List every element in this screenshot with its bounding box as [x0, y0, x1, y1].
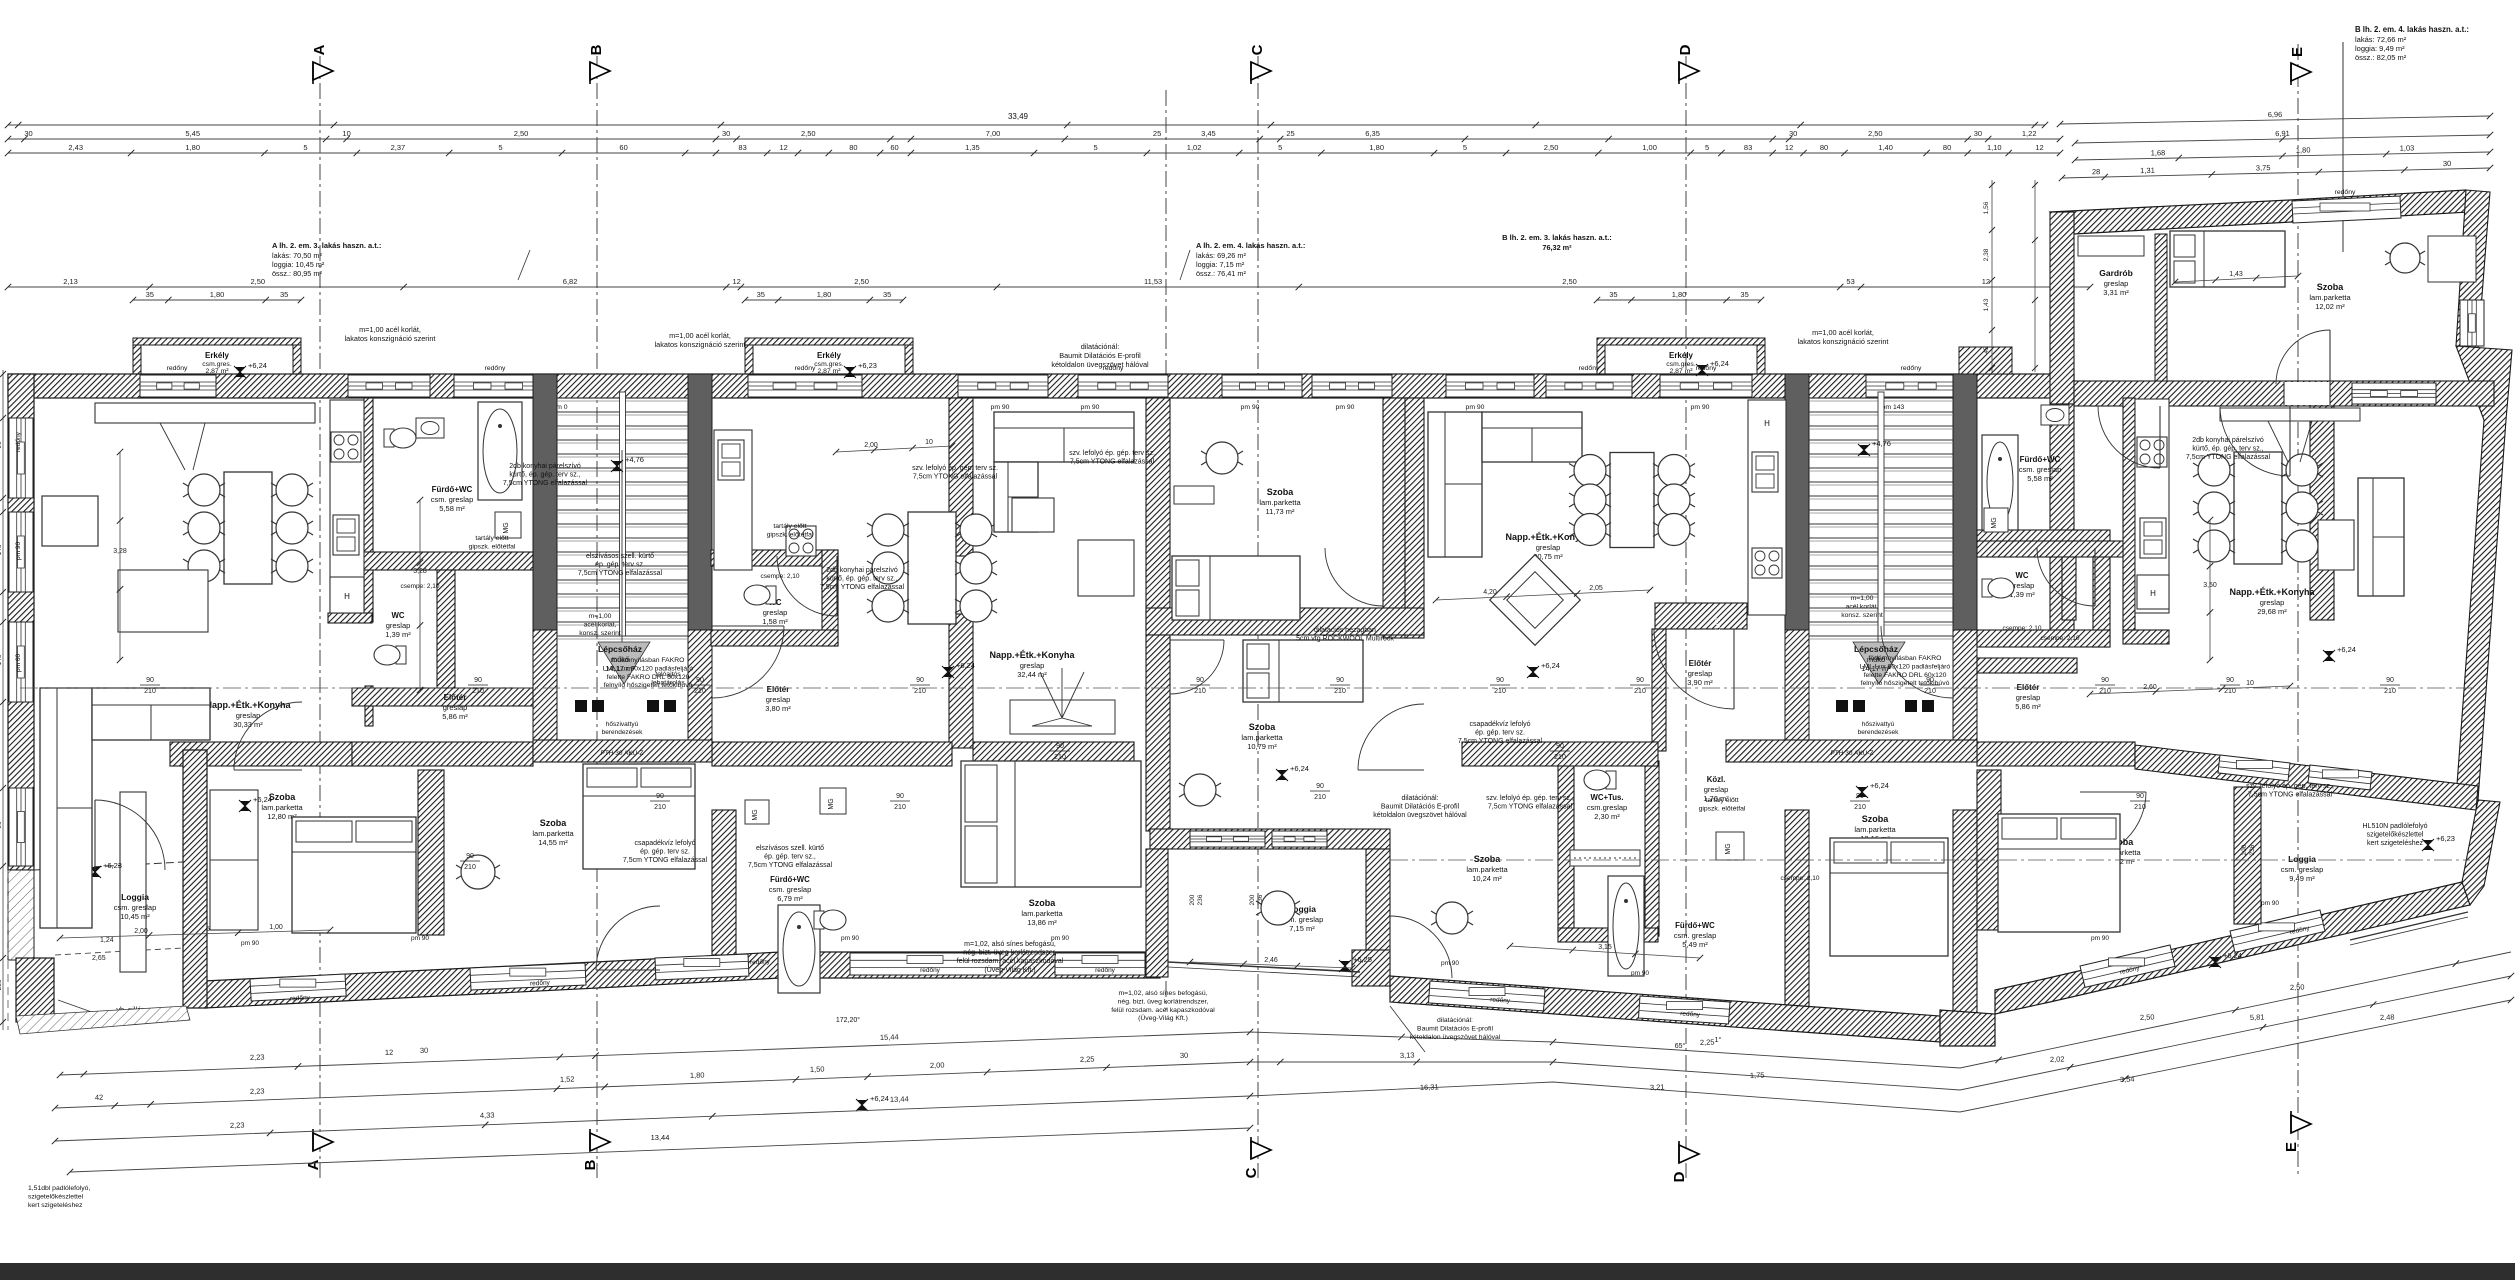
- svg-text:210: 210: [1554, 754, 1566, 761]
- svg-text:MG: MG: [1725, 843, 1732, 854]
- svg-text:90: 90: [916, 677, 924, 684]
- svg-text:+6,24: +6,24: [2223, 951, 2242, 960]
- svg-text:redőny: redőny: [1680, 1010, 1701, 1018]
- svg-text:3,15: 3,15: [1598, 944, 1612, 951]
- svg-text:lam.parketta: lam.parketta: [1466, 865, 1508, 874]
- svg-text:greslap: greslap: [766, 695, 791, 704]
- svg-text:Lépcsőház: Lépcsőház: [598, 644, 642, 654]
- svg-text:dilatációs hézagban: dilatációs hézagban: [1314, 627, 1376, 634]
- svg-text:szv. lefolyó ép. gép. terv sz.: szv. lefolyó ép. gép. terv sz.,: [1486, 795, 1574, 802]
- svg-text:C: C: [1243, 1167, 1260, 1178]
- svg-text:33,49: 33,49: [1008, 112, 1029, 121]
- svg-text:5,86 m²: 5,86 m²: [2015, 702, 2041, 711]
- svg-text:25: 25: [1286, 129, 1294, 138]
- svg-text:m=1,00 acél korlát,: m=1,00 acél korlát,: [1812, 328, 1874, 337]
- svg-text:3,75: 3,75: [2256, 163, 2271, 172]
- svg-text:pm 90: pm 90: [1241, 404, 1260, 411]
- svg-text:m=1,00 acél korlát,: m=1,00 acél korlát,: [359, 325, 421, 334]
- svg-text:12: 12: [1982, 277, 1990, 286]
- svg-text:B lh. 2. em. 3. lakás haszn. a: B lh. 2. em. 3. lakás haszn. a.t.:: [1502, 233, 1612, 242]
- svg-text:210: 210: [2134, 804, 2146, 811]
- svg-text:csm. greslap: csm. greslap: [2019, 465, 2062, 474]
- svg-text:Szoba: Szoba: [1267, 487, 1294, 497]
- svg-text:5: 5: [303, 143, 307, 152]
- svg-text:szv. lefolyó ép. gép. terv sz.: szv. lefolyó ép. gép. terv sz.: [1069, 450, 1155, 457]
- svg-text:Közl.: Közl.: [1707, 775, 1726, 784]
- svg-text:210: 210: [694, 688, 706, 695]
- svg-text:felnyíló hőszigetelt tetőkibúv: felnyíló hőszigetelt tetőkibúvó: [1861, 680, 1950, 687]
- svg-text:redőny: redőny: [2335, 189, 2356, 196]
- svg-text:redőny: redőny: [15, 431, 22, 452]
- svg-text:13,86 m²: 13,86 m²: [1027, 918, 1057, 927]
- svg-text:210: 210: [472, 688, 484, 695]
- svg-text:90: 90: [1556, 743, 1564, 750]
- svg-text:Loggia: Loggia: [121, 892, 149, 902]
- svg-text:redőny: redőny: [795, 365, 816, 372]
- svg-text:6,82: 6,82: [563, 277, 578, 286]
- svg-text:lakatos konszignáció szerint: lakatos konszignáció szerint: [345, 334, 436, 343]
- svg-text:210: 210: [1054, 754, 1066, 761]
- svg-text:35: 35: [146, 290, 154, 299]
- svg-text:dilatációnál:: dilatációnál:: [1437, 1017, 1473, 1024]
- svg-text:csm.gres.: csm.gres.: [814, 361, 844, 368]
- svg-text:2,13: 2,13: [63, 277, 78, 286]
- svg-text:90: 90: [474, 677, 482, 684]
- svg-text:146: 146: [0, 654, 3, 665]
- svg-text:lakás: 72,66 m²: lakás: 72,66 m²: [2355, 35, 2407, 44]
- svg-text:15,44: 15,44: [880, 1032, 899, 1042]
- svg-text:B: B: [582, 1159, 599, 1170]
- svg-text:30: 30: [1789, 129, 1797, 138]
- svg-text:2db konyhai párelszívó: 2db konyhai párelszívó: [2192, 437, 2264, 444]
- svg-text:kétoldalon üvegszövet hálóval: kétoldalon üvegszövet hálóval: [1410, 1034, 1501, 1041]
- svg-text:2,23: 2,23: [250, 1052, 265, 1062]
- svg-text:1,52: 1,52: [560, 1074, 575, 1084]
- svg-text:Szoba: Szoba: [540, 818, 567, 828]
- svg-text:5,58 m²: 5,58 m²: [2027, 474, 2053, 483]
- svg-text:Előtér: Előtér: [1689, 659, 1712, 668]
- svg-text:1,02: 1,02: [1187, 143, 1202, 152]
- svg-text:4,20: 4,20: [1483, 589, 1497, 596]
- svg-text:Baumit Dilatációs E-profil: Baumit Dilatációs E-profil: [1059, 351, 1141, 360]
- svg-text:7,5cm YTONG elfalazással: 7,5cm YTONG elfalazással: [820, 584, 905, 591]
- svg-text:90: 90: [656, 793, 664, 800]
- svg-text:csm. greslap: csm. greslap: [1674, 931, 1717, 940]
- svg-text:greslap: greslap: [1536, 543, 1561, 552]
- svg-text:1,03: 1,03: [2400, 143, 2415, 152]
- svg-text:1,40: 1,40: [1878, 143, 1893, 152]
- svg-text:ép. gép. terv sz.: ép. gép. terv sz.: [640, 849, 690, 856]
- svg-text:ép. gép. terv sz.: ép. gép. terv sz.: [595, 562, 645, 569]
- svg-text:210: 210: [2384, 688, 2396, 695]
- svg-text:lakatos konszignáció szerint: lakatos konszignáció szerint: [655, 340, 746, 349]
- svg-text:2,25: 2,25: [1080, 1054, 1095, 1064]
- svg-text:szv. lefolyó ép. gép. terv sz.: szv. lefolyó ép. gép. terv sz.: [912, 465, 998, 472]
- svg-text:lam.parketta: lam.parketta: [1021, 909, 1063, 918]
- svg-text:+6,24: +6,24: [956, 661, 975, 670]
- svg-text:5: 5: [1705, 143, 1709, 152]
- svg-text:redőny: redőny: [530, 979, 551, 987]
- svg-text:A: A: [305, 1159, 322, 1170]
- svg-text:PTH 30 AKU-Z: PTH 30 AKU-Z: [1831, 750, 1874, 757]
- svg-text:csm. greslap: csm. greslap: [2281, 865, 2324, 874]
- svg-text:14,55 m²: 14,55 m²: [538, 838, 568, 847]
- svg-text:2,37: 2,37: [391, 143, 406, 152]
- svg-text:2,60: 2,60: [2143, 684, 2157, 691]
- svg-text:2,50: 2,50: [801, 129, 816, 138]
- svg-text:90: 90: [2386, 677, 2394, 684]
- svg-text:berendezések: berendezések: [602, 729, 644, 736]
- svg-text:1,58 m²: 1,58 m²: [762, 617, 788, 626]
- svg-text:elszívásos szell. kürtő: elszívásos szell. kürtő: [586, 553, 654, 560]
- svg-text:Napp.+Étk.+Konyha: Napp.+Étk.+Konyha: [989, 650, 1075, 660]
- svg-text:3,31 m²: 3,31 m²: [2103, 288, 2129, 297]
- svg-text:1,80: 1,80: [210, 290, 225, 299]
- svg-text:PTH 30 AKU-Z: PTH 30 AKU-Z: [601, 750, 644, 757]
- svg-text:210: 210: [1634, 688, 1646, 695]
- svg-text:7,5cm YTONG elfalazással: 7,5cm YTONG elfalazással: [1458, 738, 1543, 745]
- svg-text:PTH 30 AKU-Z: PTH 30 AKU-Z: [463, 616, 470, 663]
- svg-text:tolóajtós: tolóajtós: [655, 671, 681, 678]
- svg-text:90: 90: [2226, 677, 2234, 684]
- svg-text:greslap: greslap: [2016, 693, 2041, 702]
- svg-text:felette FAKRO DRL 60x120: felette FAKRO DRL 60x120: [1864, 672, 1947, 679]
- svg-text:1,56: 1,56: [1983, 201, 1990, 214]
- svg-text:loggia: 10,45 m²: loggia: 10,45 m²: [272, 260, 325, 269]
- svg-text:6,35: 6,35: [1365, 129, 1380, 138]
- svg-text:6,79 m²: 6,79 m²: [777, 894, 803, 903]
- svg-text:1,80: 1,80: [185, 143, 200, 152]
- svg-text:2,48: 2,48: [2380, 1012, 2395, 1022]
- svg-text:12: 12: [385, 1048, 394, 1057]
- svg-text:pm 90: pm 90: [241, 940, 259, 947]
- svg-text:gipszk. előtétfal: gipszk. előtétfal: [469, 543, 516, 550]
- svg-text:200: 200: [2241, 844, 2248, 855]
- svg-text:H: H: [1764, 419, 1770, 428]
- svg-text:90: 90: [0, 441, 3, 449]
- svg-text:HL510N padlólefolyó: HL510N padlólefolyó: [2363, 823, 2428, 830]
- svg-text:pm 90: pm 90: [2091, 935, 2109, 942]
- svg-text:10,45 m²: 10,45 m²: [120, 912, 150, 921]
- svg-text:m=1,02, alsó sínes befogású,: m=1,02, alsó sínes befogású,: [964, 941, 1056, 948]
- svg-text:pm 90: pm 90: [1336, 404, 1355, 411]
- svg-text:172,20°: 172,20°: [836, 1016, 860, 1024]
- svg-text:szigetelőkészlettel: szigetelőkészlettel: [28, 1193, 84, 1200]
- svg-text:35: 35: [1740, 290, 1748, 299]
- svg-text:m=1,00: m=1,00: [1851, 595, 1874, 602]
- svg-text:90: 90: [1336, 677, 1344, 684]
- svg-text:Fürdő+WC: Fürdő+WC: [770, 875, 810, 884]
- svg-text:felül rozsdam. acél kapaszkodó: felül rozsdam. acél kapaszkodóval: [957, 958, 1064, 965]
- svg-text:45: 45: [1983, 346, 1990, 354]
- svg-text:össz.: 82,05 m²: össz.: 82,05 m²: [2355, 53, 2407, 62]
- svg-text:kétoldalon üvegszövet hálóval: kétoldalon üvegszövet hálóval: [1373, 812, 1467, 819]
- svg-text:A lh. 2. em. 4. lakás haszn. a: A lh. 2. em. 4. lakás haszn. a.t.:: [1196, 241, 1305, 250]
- svg-text:2,50: 2,50: [2290, 982, 2305, 992]
- svg-text:1,51dbl padlólefolyó,: 1,51dbl padlólefolyó,: [28, 1185, 90, 1192]
- svg-text:pm 60: pm 60: [15, 654, 22, 672]
- svg-text:csapadékvíz lefolyó: csapadékvíz lefolyó: [634, 840, 695, 847]
- svg-text:lehatárolás: lehatárolás: [651, 679, 685, 686]
- svg-text:+6,23: +6,23: [2436, 834, 2455, 843]
- svg-text:210: 210: [654, 804, 666, 811]
- svg-text:D: D: [1677, 44, 1694, 55]
- svg-text:90: 90: [1496, 677, 1504, 684]
- svg-text:80: 80: [1943, 143, 1951, 152]
- svg-text:3,21: 3,21: [1650, 1082, 1665, 1092]
- svg-text:hőszivattyú: hőszivattyú: [1862, 721, 1895, 728]
- svg-text:2,02: 2,02: [2050, 1054, 2065, 1064]
- svg-text:nég. bizt. üveg korlátrendszer: nég. bizt. üveg korlátrendszer,: [1118, 998, 1209, 1005]
- svg-text:konsz. szerint: konsz. szerint: [579, 630, 621, 637]
- svg-text:11,73 m²: 11,73 m²: [1265, 507, 1295, 516]
- svg-text:Loggia: Loggia: [2288, 854, 2316, 864]
- svg-text:greslap: greslap: [1020, 661, 1045, 670]
- svg-text:kert szigeteléshez: kert szigeteléshez: [2367, 840, 2424, 847]
- svg-text:redőny: redőny: [1901, 365, 1922, 372]
- svg-text:210: 210: [1924, 688, 1936, 695]
- svg-text:1,80: 1,80: [1369, 143, 1384, 152]
- svg-text:2,00: 2,00: [864, 442, 878, 449]
- svg-text:pm 90: pm 90: [1441, 960, 1459, 967]
- svg-text:236: 236: [2249, 844, 2256, 855]
- svg-text:210: 210: [1314, 794, 1326, 801]
- svg-text:35: 35: [280, 290, 288, 299]
- svg-text:+4,76: +4,76: [625, 455, 644, 464]
- svg-text:Szoba: Szoba: [269, 792, 296, 802]
- svg-text:30: 30: [1180, 1051, 1189, 1060]
- svg-text:3,54: 3,54: [2120, 1074, 2135, 1084]
- svg-text:redőny: redőny: [920, 967, 941, 974]
- svg-text:2db konyhai párelszívó: 2db konyhai párelszívó: [826, 567, 898, 574]
- svg-text:greslap: greslap: [443, 703, 468, 712]
- svg-text:(Üveg-Világ Kft.): (Üveg-Világ Kft.): [984, 966, 1035, 974]
- svg-text:5: 5: [1278, 143, 1282, 152]
- svg-text:5: 5: [1094, 143, 1098, 152]
- svg-text:7,5cm YTONG elfalazással: 7,5cm YTONG elfalazással: [623, 857, 708, 864]
- svg-text:MG: MG: [828, 798, 835, 809]
- svg-text:90: 90: [0, 821, 3, 829]
- svg-text:redőny: redőny: [485, 365, 506, 372]
- svg-text:redőny: redőny: [1490, 996, 1511, 1004]
- svg-text:2,50: 2,50: [854, 277, 869, 286]
- svg-text:kürtő, ép. gép. terv sz.,: kürtő, ép. gép. terv sz.,: [2192, 446, 2263, 453]
- svg-text:5,86 m²: 5,86 m²: [442, 712, 468, 721]
- svg-text:A: A: [311, 44, 328, 55]
- svg-text:dilatációnál:: dilatációnál:: [1081, 342, 1120, 351]
- svg-text:redőny: redőny: [1103, 365, 1124, 372]
- svg-text:MG: MG: [752, 809, 759, 820]
- svg-text:200: 200: [1189, 894, 1196, 905]
- svg-text:11,53: 11,53: [1144, 277, 1162, 286]
- svg-text:MG: MG: [1991, 517, 1998, 528]
- svg-text:1,80: 1,80: [817, 290, 832, 299]
- svg-text:90: 90: [1056, 743, 1064, 750]
- svg-text:+6,24: +6,24: [253, 795, 272, 804]
- svg-text:Baumit Dilatációs E-profil: Baumit Dilatációs E-profil: [1417, 1025, 1493, 1032]
- svg-text:42: 42: [95, 1093, 104, 1102]
- svg-text:lakás: 70,50 m²: lakás: 70,50 m²: [272, 251, 322, 260]
- svg-text:210: 210: [144, 688, 156, 695]
- svg-text:1,00: 1,00: [269, 924, 283, 931]
- svg-text:kétoldalon üvegszövet hálóval: kétoldalon üvegszövet hálóval: [1051, 360, 1149, 369]
- svg-text:pm 90: pm 90: [1691, 404, 1710, 411]
- svg-text:1,43: 1,43: [1983, 298, 1990, 311]
- svg-text:WC+Tus.: WC+Tus.: [1591, 793, 1624, 802]
- svg-text:Szoba: Szoba: [2317, 282, 2344, 292]
- svg-text:WC: WC: [392, 611, 405, 620]
- svg-text:pm 90: pm 90: [1466, 404, 1485, 411]
- svg-text:Erkély: Erkély: [1669, 351, 1694, 360]
- svg-text:m=1,00 acél korlát,: m=1,00 acél korlát,: [669, 331, 731, 340]
- svg-text:3,90 m²: 3,90 m²: [1687, 678, 1713, 687]
- svg-text:redőny: redőny: [1095, 967, 1116, 974]
- svg-text:12: 12: [1785, 143, 1793, 152]
- svg-text:1,75: 1,75: [1750, 1070, 1765, 1080]
- svg-text:7,5cm YTONG elfalazással: 7,5cm YTONG elfalazással: [503, 480, 588, 487]
- svg-text:Lépcsőház: Lépcsőház: [1854, 644, 1898, 654]
- svg-text:7,5cm YTONG elfalazással: 7,5cm YTONG elfalazással: [2248, 792, 2333, 799]
- svg-text:m=1,02, alsó sínes befogású,: m=1,02, alsó sínes befogású,: [1119, 990, 1208, 997]
- svg-text:210: 210: [914, 688, 926, 695]
- svg-text:1,80: 1,80: [690, 1070, 705, 1080]
- svg-text:83: 83: [1744, 143, 1752, 152]
- svg-text:lam.parketta: lam.parketta: [1241, 733, 1283, 742]
- svg-text:35: 35: [883, 290, 891, 299]
- svg-text:90: 90: [896, 793, 904, 800]
- svg-text:szv. lefolyó ép. gép. terv sz.: szv. lefolyó ép. gép. terv sz.,: [2246, 783, 2334, 790]
- svg-text:+6,24: +6,24: [1290, 764, 1309, 773]
- svg-text:lam.parketta: lam.parketta: [2309, 293, 2351, 302]
- svg-text:1,43: 1,43: [2229, 271, 2243, 278]
- svg-text:2,38: 2,38: [1983, 248, 1990, 261]
- svg-text:lakatos konszignáció szerint: lakatos konszignáció szerint: [1798, 337, 1889, 346]
- svg-text:lam.parketta: lam.parketta: [1259, 498, 1301, 507]
- svg-text:7,5cm YTONG elfalazással: 7,5cm YTONG elfalazással: [1070, 459, 1155, 466]
- svg-text:csempe: 2,10: csempe: 2,10: [2002, 625, 2041, 632]
- svg-text:szigetelőkészlettel: szigetelőkészlettel: [2367, 832, 2424, 839]
- svg-text:WC: WC: [2016, 571, 2029, 580]
- svg-text:MG: MG: [503, 522, 510, 533]
- svg-text:PTH 30 AKU-Z: PTH 30 AKU-Z: [1715, 616, 1722, 663]
- svg-text:redőny: redőny: [290, 994, 311, 1002]
- svg-text:acél korlát,: acél korlát,: [1846, 603, 1879, 610]
- svg-text:E: E: [2289, 47, 2306, 57]
- svg-text:1,80: 1,80: [1672, 290, 1687, 299]
- svg-text:greslap: greslap: [386, 621, 411, 630]
- svg-text:+6,23: +6,23: [858, 361, 877, 370]
- svg-text:csm.gres.: csm.gres.: [202, 361, 232, 368]
- svg-text:3,28: 3,28: [413, 568, 427, 575]
- svg-text:6,96: 6,96: [2268, 110, 2283, 119]
- svg-text:+6,24: +6,24: [248, 361, 267, 370]
- svg-text:greslap: greslap: [1704, 785, 1729, 794]
- svg-text:lakás: 69,26 m²: lakás: 69,26 m²: [1196, 251, 1246, 260]
- svg-text:2,43: 2,43: [68, 143, 83, 152]
- svg-text:pm 90: pm 90: [1051, 935, 1069, 942]
- svg-text:Fürdő+WC: Fürdő+WC: [432, 485, 473, 494]
- svg-text:2,50: 2,50: [1544, 143, 1559, 152]
- svg-text:30: 30: [1974, 129, 1982, 138]
- svg-text:greslap: greslap: [2260, 598, 2285, 607]
- svg-text:Fürdő+WC: Fürdő+WC: [2020, 455, 2061, 464]
- svg-text:5,81: 5,81: [2250, 1012, 2265, 1022]
- svg-text:E: E: [2283, 1142, 2300, 1152]
- svg-text:90: 90: [1636, 677, 1644, 684]
- svg-text:35: 35: [1609, 290, 1617, 299]
- svg-text:födémnyílásban FAKRO: födémnyílásban FAKRO: [1869, 655, 1942, 662]
- svg-text:csm. greslap: csm. greslap: [431, 495, 474, 504]
- svg-text:csempe: 2,10: csempe: 2,10: [2040, 635, 2079, 642]
- svg-text:210: 210: [1194, 688, 1206, 695]
- svg-text:236: 236: [1257, 894, 1264, 905]
- svg-text:greslap: greslap: [1688, 669, 1713, 678]
- svg-text:30: 30: [2443, 159, 2452, 168]
- svg-text:60: 60: [619, 143, 627, 152]
- svg-text:greslap: greslap: [763, 608, 788, 617]
- svg-text:H: H: [2150, 589, 2156, 598]
- svg-text:210: 210: [2224, 688, 2236, 695]
- svg-text:+6,24: +6,24: [1710, 359, 1729, 368]
- svg-text:födémnyílásban FAKRO: födémnyílásban FAKRO: [612, 657, 685, 664]
- svg-text:össz.: 76,41 m²: össz.: 76,41 m²: [1196, 269, 1246, 278]
- svg-text:+6,23: +6,23: [103, 861, 122, 870]
- svg-text:7,5cm YTONG elfalazással: 7,5cm YTONG elfalazással: [748, 862, 833, 869]
- svg-text:+6,24: +6,24: [870, 1094, 889, 1103]
- svg-text:LML Lux 60x120 padlásfeljáró: LML Lux 60x120 padlásfeljáró: [1860, 663, 1951, 670]
- svg-text:loggia: 7,15 m²: loggia: 7,15 m²: [1196, 260, 1245, 269]
- svg-text:C: C: [1249, 44, 1266, 55]
- svg-text:csempe: 2,10: csempe: 2,10: [1780, 875, 1819, 882]
- svg-text:146: 146: [0, 544, 3, 555]
- svg-text:1,24: 1,24: [100, 937, 114, 944]
- svg-text:csapadékvíz lefolyó: csapadékvíz lefolyó: [1469, 721, 1530, 728]
- svg-text:7,5cm YTONG elfalazással: 7,5cm YTONG elfalazással: [578, 570, 663, 577]
- svg-text:83: 83: [738, 143, 746, 152]
- svg-text:tartály előtt: tartály előtt: [773, 523, 806, 530]
- svg-text:pm 90: pm 90: [841, 935, 859, 942]
- svg-text:65°: 65°: [1675, 1042, 1686, 1050]
- svg-text:hőszivattyú: hőszivattyú: [606, 721, 639, 728]
- svg-text:csempe: 2,10: csempe: 2,10: [760, 573, 799, 580]
- svg-text:3,45: 3,45: [1201, 129, 1216, 138]
- svg-text:felül rozsdam. acél kapaszkodó: felül rozsdam. acél kapaszkodóval: [1111, 1007, 1215, 1014]
- svg-text:2db konyhai párelszívó: 2db konyhai párelszívó: [509, 463, 581, 470]
- svg-text:35: 35: [757, 290, 765, 299]
- svg-text:+6,25: +6,25: [1353, 955, 1372, 964]
- svg-text:1°: 1°: [1715, 1036, 1722, 1044]
- svg-text:6,91: 6,91: [2275, 129, 2290, 138]
- svg-text:4,33: 4,33: [480, 1110, 495, 1120]
- svg-text:7,15 m²: 7,15 m²: [1289, 924, 1315, 933]
- svg-text:Napp.+Étk.+Konyha: Napp.+Étk.+Konyha: [205, 700, 291, 710]
- svg-text:2,05: 2,05: [1589, 585, 1603, 592]
- svg-text:pm 90: pm 90: [2261, 900, 2279, 907]
- svg-text:Erkély: Erkély: [817, 351, 842, 360]
- svg-text:80: 80: [1820, 143, 1828, 152]
- svg-text:5: 5: [1463, 143, 1467, 152]
- svg-text:10: 10: [342, 129, 350, 138]
- svg-text:tartály előtt: tartály előtt: [475, 535, 508, 542]
- svg-text:Szoba: Szoba: [1029, 898, 1056, 908]
- svg-text:210: 210: [1494, 688, 1506, 695]
- svg-text:(Üveg-Világ Kft.): (Üveg-Világ Kft.): [1138, 1014, 1188, 1022]
- svg-text:lam.parketta: lam.parketta: [261, 803, 303, 812]
- svg-text:53: 53: [1846, 277, 1854, 286]
- svg-text:12: 12: [2035, 143, 2043, 152]
- svg-text:2,50: 2,50: [1868, 129, 1883, 138]
- svg-text:12: 12: [780, 143, 788, 152]
